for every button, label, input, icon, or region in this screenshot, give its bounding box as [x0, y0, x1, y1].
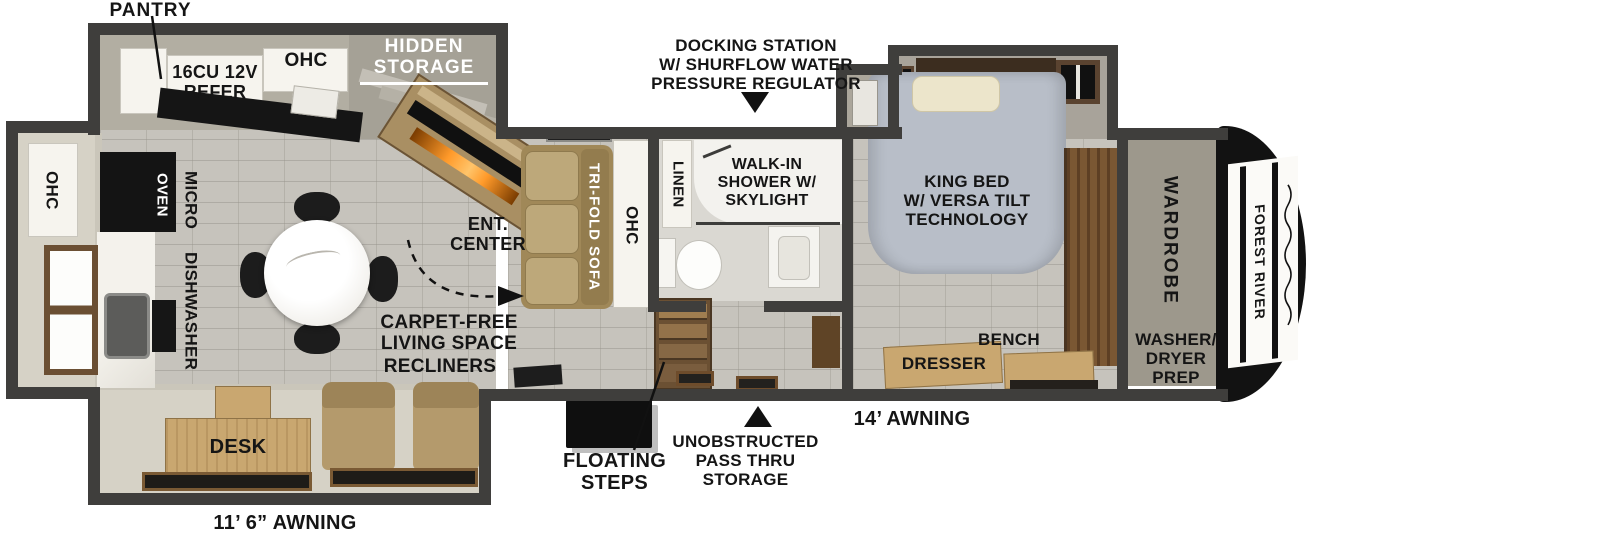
wall — [88, 387, 100, 505]
recliner — [322, 382, 395, 470]
dishwasher-label: DISHWASHER — [178, 240, 204, 382]
wall — [648, 127, 659, 312]
signature-squiggle — [1280, 180, 1296, 338]
wall — [6, 121, 18, 399]
entry-mat — [513, 364, 562, 387]
cap-stripe — [1272, 162, 1278, 359]
pass-thru-arrow-icon — [744, 406, 772, 427]
linen-label: LINEN — [664, 144, 690, 224]
wall — [88, 23, 508, 35]
bench-label: BENCH — [973, 330, 1045, 349]
wall — [88, 493, 491, 505]
floorplan: 16CU 12VREFER OHC HIDDENSTORAGE OVEN MIC… — [0, 0, 1600, 534]
desk-mat — [142, 472, 312, 491]
wall — [764, 301, 853, 312]
bed-pillow — [912, 76, 1000, 112]
kitchen-window — [44, 245, 98, 375]
wall — [479, 389, 1228, 401]
step-tread — [659, 344, 707, 360]
ohc-slide-label: OHC — [38, 152, 66, 228]
oven-label: OVEN — [148, 160, 174, 230]
toilet-tank — [658, 238, 676, 288]
floating-steps — [566, 400, 652, 448]
recliner-back — [413, 382, 479, 408]
wall — [6, 121, 100, 133]
ohc-top-label: OHC — [270, 50, 342, 71]
hall-cabinet — [812, 316, 840, 368]
bath-sink — [778, 236, 810, 280]
awning-left-label: 11’ 6” AWNING — [200, 512, 370, 534]
wall — [648, 301, 706, 312]
recliner — [413, 382, 479, 470]
forest-river-logo: FOREST RIVER — [1248, 165, 1270, 360]
kitchen-sink — [104, 293, 150, 359]
wall — [496, 127, 853, 139]
docking-station-label: DOCKING STATIONW/ SHURFLOW WATERPRESSURE… — [640, 36, 872, 93]
sofa-cushion — [525, 257, 579, 305]
pantry-label: PANTRY — [103, 0, 198, 21]
wardrobe-label: WARDROBE — [1152, 168, 1188, 313]
step-tread — [659, 324, 707, 340]
cap-stripe — [1240, 166, 1246, 363]
king-bed-label: KING BEDW/ VERSA TILTTECHNOLOGY — [878, 172, 1056, 229]
refer-label: 16CU 12VREFER — [167, 62, 263, 102]
dining-table — [264, 220, 370, 326]
wall — [6, 387, 100, 399]
carpet-free-label: CARPET-FREELIVING SPACE — [375, 312, 523, 355]
wall — [888, 45, 1118, 56]
wall — [888, 45, 899, 139]
front-cap-band: FOREST RIVER — [1228, 156, 1298, 369]
dining-chair — [366, 256, 398, 302]
floor-hatch — [676, 371, 714, 386]
toilet-bowl — [676, 240, 722, 290]
hidden-storage-underline — [360, 82, 488, 85]
sofa-label: TRI-FOLD SOFA — [578, 152, 608, 302]
awning-right-label: 14’ AWNING — [842, 408, 982, 430]
bedroom-closet — [1064, 148, 1117, 366]
wall — [1107, 45, 1118, 139]
pass-thru-label: UNOBSTRUCTEDPASS THRUSTORAGE — [668, 432, 823, 489]
recliners-label: RECLINERS — [380, 356, 500, 377]
wall — [842, 127, 853, 401]
wall — [1117, 128, 1128, 401]
sofa-cushion — [525, 151, 579, 201]
ohc-sofa-label: OHC — [618, 160, 646, 290]
cooktop — [290, 85, 339, 118]
wall — [88, 23, 100, 135]
shower-glass — [696, 222, 840, 225]
hidden-storage-label: HIDDENSTORAGE — [352, 36, 496, 79]
dining-chair — [294, 322, 340, 354]
floating-steps-label: FLOATINGSTEPS — [552, 450, 677, 495]
recliner-back — [322, 382, 395, 408]
docking-arrow-icon — [741, 92, 769, 113]
washer-dryer-label: WASHER/DRYERPREP — [1128, 330, 1224, 387]
dresser-label: DRESSER — [896, 354, 992, 373]
shower-label: WALK-INSHOWER W/SKYLIGHT — [700, 156, 834, 210]
dishwasher-front — [152, 300, 176, 352]
ent-center-label: ENT.CENTER — [436, 214, 540, 254]
recliner-mat — [330, 468, 478, 487]
desk-label: DESK — [165, 436, 311, 458]
wall — [496, 23, 508, 139]
wall — [479, 390, 491, 500]
micro-label: MICRO — [178, 163, 204, 237]
